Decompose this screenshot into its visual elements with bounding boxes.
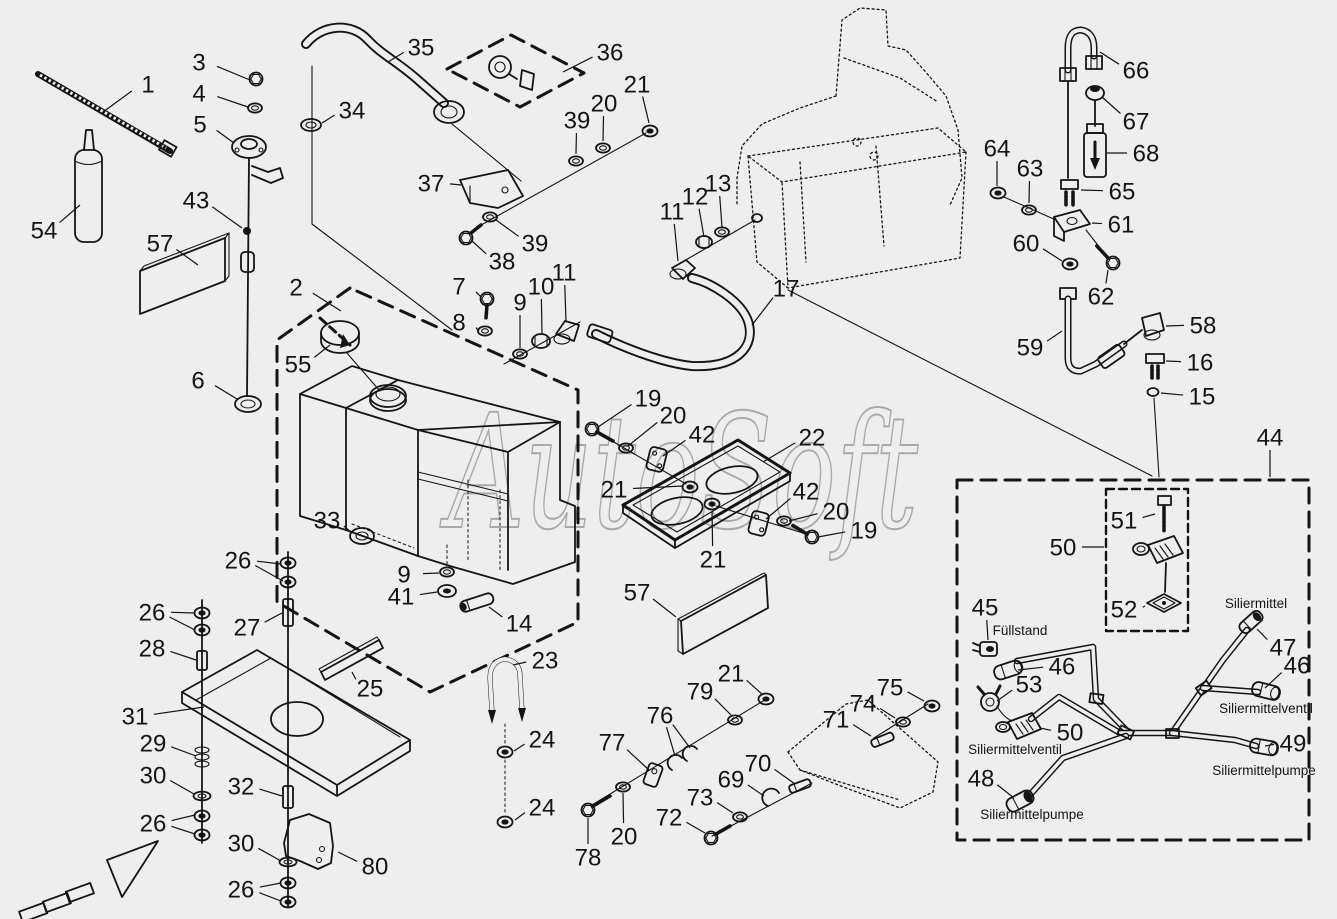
pin-fastener-row-3 <box>870 701 939 748</box>
part-callout-42: 42 <box>689 422 716 449</box>
leader-line <box>215 386 237 399</box>
part-callout-38: 38 <box>489 249 516 276</box>
part-callout-26: 26 <box>139 600 166 627</box>
part-callout-21: 21 <box>700 547 727 574</box>
leader-line <box>748 785 764 796</box>
part-callout-72: 72 <box>656 805 683 832</box>
part-callout-59: 59 <box>1017 335 1044 362</box>
direction-arrow <box>19 841 158 919</box>
leader-line <box>423 573 439 574</box>
part-callout-45: 45 <box>972 595 999 622</box>
component-label: Siliermittelventil <box>1219 701 1313 716</box>
u-bolt-23 <box>488 659 526 828</box>
leader-line <box>667 727 675 756</box>
leader-line <box>265 613 282 622</box>
part-callout-21: 21 <box>718 661 745 688</box>
leader-line <box>643 96 649 123</box>
leader-line <box>1161 393 1183 395</box>
part-callout-57: 57 <box>624 580 651 607</box>
part-callout-22: 22 <box>799 425 826 452</box>
leader-line <box>217 97 248 107</box>
leader-line <box>720 196 722 227</box>
part-callout-46: 46 <box>1284 653 1311 680</box>
part-callout-74: 74 <box>850 691 877 718</box>
leader-line <box>255 565 283 581</box>
part-callout-35: 35 <box>408 35 435 62</box>
part-callout-23: 23 <box>532 648 559 675</box>
part-callout-37: 37 <box>418 171 445 198</box>
part-callout-52: 52 <box>1111 597 1138 624</box>
leader-line <box>541 299 542 334</box>
part-callout-30: 30 <box>140 763 167 790</box>
leader-line <box>1102 97 1120 114</box>
part-callout-19: 19 <box>851 518 878 545</box>
label-plate-mid <box>678 573 768 654</box>
part-callout-6: 6 <box>191 368 204 395</box>
part-callout-19: 19 <box>635 386 662 413</box>
leader-line <box>1166 361 1181 362</box>
part-callout-20: 20 <box>823 499 850 526</box>
part-callout-15: 15 <box>1189 384 1216 411</box>
part-callout-49: 49 <box>1280 731 1307 758</box>
part-callout-2: 2 <box>289 275 302 302</box>
leader-line <box>1081 190 1103 191</box>
leader-line <box>673 725 690 748</box>
leader-line <box>1257 629 1267 640</box>
part-callout-76: 76 <box>647 703 674 730</box>
leader-line <box>338 852 357 861</box>
part-callout-20: 20 <box>660 403 687 430</box>
part-callout-60: 60 <box>1013 231 1040 258</box>
leader-line <box>476 328 478 331</box>
leader-line <box>1047 331 1062 341</box>
part-callout-39: 39 <box>522 231 549 258</box>
connector-45-fuellstand <box>973 642 997 656</box>
part-callout-17: 17 <box>773 276 800 303</box>
breather-pipe <box>301 28 521 330</box>
leader-line <box>260 883 281 887</box>
leader-line <box>674 224 678 261</box>
valve-50-harness <box>996 713 1041 739</box>
leader-line <box>997 690 1012 701</box>
leader-line <box>103 91 132 112</box>
part-callout-34: 34 <box>339 98 366 125</box>
part-callout-66: 66 <box>1123 58 1150 85</box>
leader-line <box>603 116 604 141</box>
part-callout-54: 54 <box>31 218 58 245</box>
leader-line <box>853 725 871 736</box>
part-callout-80: 80 <box>362 854 389 881</box>
leader-line <box>699 209 704 237</box>
part-callout-4: 4 <box>192 81 205 108</box>
leader-line <box>217 66 250 80</box>
filler-cap-55 <box>321 321 380 391</box>
leader-line <box>258 848 281 861</box>
part-callout-69: 69 <box>718 767 745 794</box>
leader-line <box>1092 223 1102 224</box>
component-label: Siliermittel <box>1225 596 1287 611</box>
leader-line <box>170 617 195 630</box>
leader-line <box>171 826 195 834</box>
part-callout-44: 44 <box>1257 425 1284 452</box>
part-callout-67: 67 <box>1123 109 1150 136</box>
level-sensor <box>232 73 283 413</box>
leader-line <box>1166 325 1184 326</box>
leader-line <box>686 822 705 833</box>
part-callout-68: 68 <box>1133 141 1160 168</box>
component-label: Siliermittelventil <box>968 742 1062 757</box>
part-callout-21: 21 <box>601 477 628 504</box>
exploded-parts-diagram: AutoSoft <box>0 0 1337 919</box>
machine-outline <box>737 8 962 205</box>
hose-piece-14 <box>459 592 495 613</box>
leader-line <box>212 207 242 228</box>
leader-line <box>752 298 773 325</box>
part-callout-50: 50 <box>1050 535 1077 562</box>
leader-line <box>908 692 924 701</box>
leader-line <box>259 893 281 901</box>
part-callout-61: 61 <box>1108 212 1135 239</box>
supply-hose-17 <box>586 220 755 366</box>
part-callout-79: 79 <box>687 679 714 706</box>
leader-line <box>217 130 234 143</box>
part-callout-58: 58 <box>1190 313 1217 340</box>
part-callout-57: 57 <box>147 231 174 258</box>
part-callout-71: 71 <box>823 707 850 734</box>
part-callout-1: 1 <box>141 72 154 99</box>
part-callout-31: 31 <box>122 704 149 731</box>
leader-line <box>352 672 356 679</box>
plug-53 <box>978 686 1000 711</box>
part-callout-30: 30 <box>228 831 255 858</box>
part-callout-26: 26 <box>140 811 167 838</box>
leader-line <box>314 345 330 357</box>
leader-line <box>489 607 502 617</box>
part-callout-24: 24 <box>529 795 556 822</box>
part-callout-46: 46 <box>1049 654 1076 681</box>
return-hose-59 <box>1060 288 1164 477</box>
part-callout-7: 7 <box>452 274 465 301</box>
leader-line <box>496 220 519 236</box>
leader-line <box>172 815 195 821</box>
part-callout-55: 55 <box>285 352 312 379</box>
part-callout-13: 13 <box>705 171 732 198</box>
part-callout-43: 43 <box>183 188 210 215</box>
leader-line <box>653 599 676 617</box>
part-callout-16: 16 <box>1187 350 1214 377</box>
leader-line <box>476 292 481 297</box>
part-callout-65: 65 <box>1109 179 1136 206</box>
component-label: Siliermittelpumpe <box>980 807 1084 822</box>
leader-line <box>1043 249 1062 261</box>
part-callout-36: 36 <box>597 40 624 67</box>
part-callout-11: 11 <box>552 260 577 287</box>
leader-line <box>322 115 335 123</box>
leader-line <box>170 651 196 660</box>
german-annotations-layer: FüllstandSiliermittelSiliermittelventilS… <box>968 596 1316 822</box>
leader-line <box>623 793 624 823</box>
leader-line <box>450 184 461 185</box>
part-callout-21: 21 <box>624 72 651 99</box>
leader-line <box>472 241 486 254</box>
leader-line <box>1265 744 1274 746</box>
part-callout-3: 3 <box>192 50 205 77</box>
leader-line <box>987 620 988 640</box>
part-callout-75: 75 <box>877 675 904 702</box>
leader-line <box>60 205 80 223</box>
part-callout-70: 70 <box>745 751 772 778</box>
part-callout-33: 33 <box>314 508 341 535</box>
part-callout-10: 10 <box>528 274 555 301</box>
leader-line <box>997 785 1014 798</box>
sealant-cartridge <box>75 130 102 242</box>
leader-line <box>1143 514 1155 518</box>
leader-line <box>1106 270 1108 283</box>
leader-line <box>775 769 795 784</box>
part-callout-20: 20 <box>611 824 638 851</box>
leader-line <box>715 699 731 715</box>
part-callout-27: 27 <box>234 615 261 642</box>
leader-line <box>712 511 713 546</box>
part-callout-8: 8 <box>452 310 465 337</box>
leader-line <box>1143 606 1145 607</box>
part-callout-64: 64 <box>984 136 1011 163</box>
part-callout-26: 26 <box>225 548 252 575</box>
part-callout-28: 28 <box>139 636 166 663</box>
part-callout-48: 48 <box>968 766 995 793</box>
part-callout-51: 51 <box>1111 508 1138 535</box>
part-callout-62: 62 <box>1088 284 1115 311</box>
part-callout-53: 53 <box>1016 672 1043 699</box>
component-label: Siliermittelpumpe <box>1212 763 1316 778</box>
component-label: Füllstand <box>993 623 1048 638</box>
part-callout-32: 32 <box>228 774 255 801</box>
part-callout-39: 39 <box>564 108 591 135</box>
part-callout-73: 73 <box>687 785 714 812</box>
leader-line <box>171 612 195 613</box>
leader-line <box>171 747 196 756</box>
leader-line <box>420 592 437 595</box>
part-callout-63: 63 <box>1017 156 1044 183</box>
part-callout-42: 42 <box>793 479 820 506</box>
leader-line <box>627 750 649 770</box>
parts-diagram-page: AutoSoft <box>0 0 1337 919</box>
part-callout-20: 20 <box>591 91 618 118</box>
part-callout-14: 14 <box>506 611 533 638</box>
leader-line <box>514 744 525 751</box>
cable-tie <box>38 74 177 157</box>
leader-line <box>747 680 763 695</box>
part-callout-41: 41 <box>388 584 415 611</box>
solenoid-valve-group <box>1133 496 1183 612</box>
leader-line <box>717 803 733 813</box>
part-callout-50: 50 <box>1057 720 1084 747</box>
part-callout-78: 78 <box>575 845 602 872</box>
part-callout-26: 26 <box>228 877 255 904</box>
mounting-bracket-37 <box>460 126 658 245</box>
cap-kit-box <box>447 35 584 107</box>
leader-line <box>170 780 194 794</box>
part-callout-25: 25 <box>357 676 384 703</box>
leader-line <box>565 285 566 321</box>
leader-line <box>515 813 525 820</box>
connector-47-siliermittel <box>1237 609 1264 635</box>
part-callout-29: 29 <box>140 731 167 758</box>
part-callout-77: 77 <box>599 730 626 757</box>
leader-line <box>259 789 282 796</box>
part-callout-9: 9 <box>513 290 526 317</box>
part-callout-5: 5 <box>193 112 206 139</box>
part-callout-24: 24 <box>529 727 556 754</box>
